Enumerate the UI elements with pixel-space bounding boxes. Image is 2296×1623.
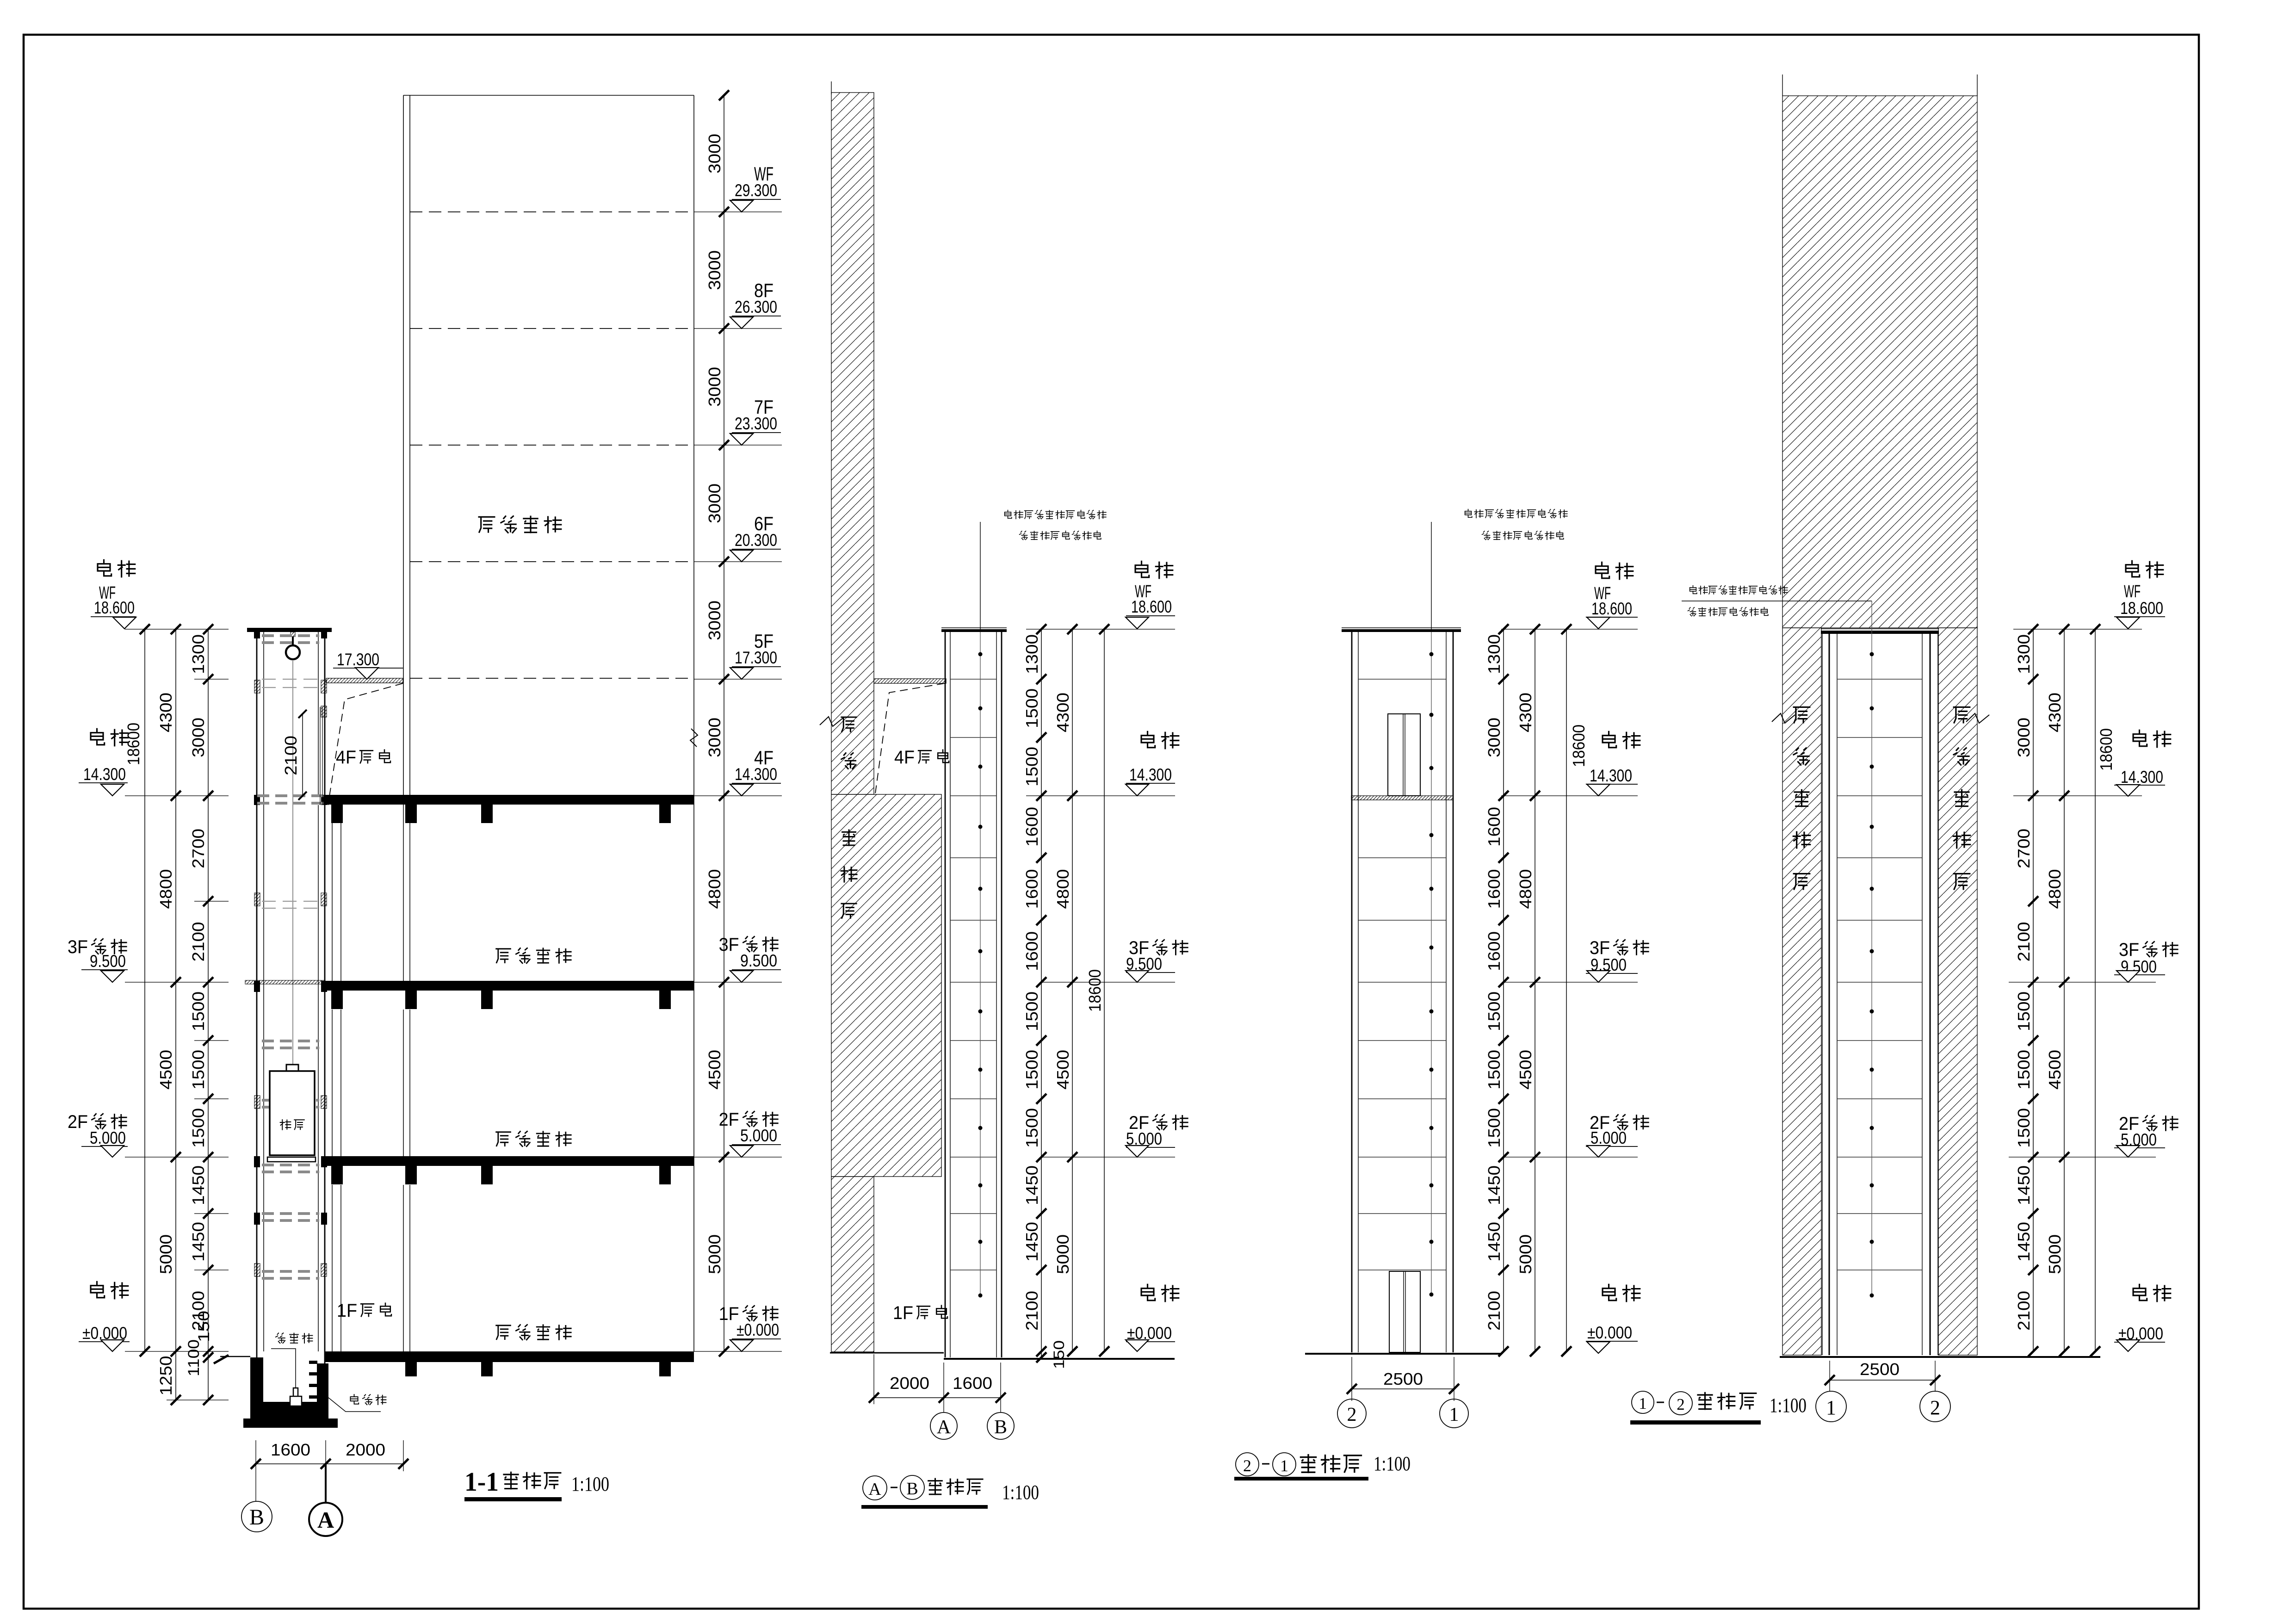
svg-text:3000: 3000 [705,134,724,173]
svg-text:18.600: 18.600 [1131,597,1172,616]
svg-text:1-1: 1-1 [464,1467,499,1497]
svg-text:2100: 2100 [2014,1291,2033,1331]
svg-text:1450: 1450 [1485,1222,1504,1262]
svg-text:4500: 4500 [705,1050,724,1090]
svg-text:4300: 4300 [1053,693,1072,732]
svg-text:2: 2 [1243,1456,1251,1475]
svg-text:3000: 3000 [2014,718,2033,757]
svg-text:2000: 2000 [890,1374,929,1393]
svg-text:2500: 2500 [1860,1360,1900,1379]
svg-text:5000: 5000 [1516,1234,1535,1274]
svg-text:5000: 5000 [705,1234,724,1274]
svg-text:1500: 1500 [1022,747,1041,787]
svg-text:1500: 1500 [1022,688,1041,728]
svg-text:1: 1 [1639,1394,1647,1412]
svg-text:4500: 4500 [1516,1050,1535,1090]
svg-text:1600: 1600 [1022,807,1041,847]
svg-text:20.300: 20.300 [735,531,777,550]
svg-text:1500: 1500 [189,991,208,1031]
svg-text:4800: 4800 [1516,869,1535,909]
svg-text:4300: 4300 [1516,693,1535,732]
svg-text:2: 2 [1347,1404,1357,1425]
svg-text:A: A [937,1417,951,1438]
svg-text:1250: 1250 [156,1356,175,1396]
svg-text:14.300: 14.300 [83,765,126,784]
svg-text:2: 2 [1677,1395,1685,1413]
svg-text:4800: 4800 [2045,869,2064,909]
svg-text:1600: 1600 [953,1374,992,1393]
svg-text:4F: 4F [894,747,915,768]
svg-text:18600: 18600 [2097,728,2116,771]
svg-text:1:100: 1:100 [1770,1394,1807,1417]
svg-text:B: B [906,1479,918,1499]
svg-text:1300: 1300 [1485,634,1504,674]
svg-text:5000: 5000 [2045,1234,2064,1274]
svg-text:1600: 1600 [1485,869,1504,909]
svg-text:1500: 1500 [2014,1108,2033,1148]
svg-text:2: 2 [1930,1396,1940,1419]
svg-text:1600: 1600 [271,1440,310,1459]
svg-text:5.000: 5.000 [740,1126,777,1145]
svg-text:5000: 5000 [1053,1234,1072,1274]
svg-text:3000: 3000 [705,718,724,757]
svg-text:1500: 1500 [189,1108,208,1148]
svg-text:1:100: 1:100 [571,1473,609,1495]
svg-text:2100: 2100 [281,736,300,775]
svg-text:1600: 1600 [1022,869,1041,909]
svg-text:1450: 1450 [1022,1222,1041,1262]
svg-text:3000: 3000 [705,367,724,407]
svg-text:B: B [249,1505,264,1530]
svg-text:3000: 3000 [1485,718,1504,757]
svg-text:1: 1 [1280,1456,1288,1475]
svg-text:3000: 3000 [189,718,208,757]
svg-text:1450: 1450 [189,1165,208,1205]
svg-text:3000: 3000 [705,601,724,640]
svg-text:2100: 2100 [1485,1291,1504,1331]
svg-text:17.300: 17.300 [337,650,379,669]
svg-text:1450: 1450 [1485,1165,1504,1205]
svg-text:5.000: 5.000 [90,1128,126,1147]
svg-text:29.300: 29.300 [735,181,777,200]
svg-text:5.000: 5.000 [1590,1128,1627,1147]
svg-text:2500: 2500 [1383,1369,1423,1388]
svg-text:4300: 4300 [2045,693,2064,732]
svg-text:1300: 1300 [189,634,208,674]
svg-text:±0.000: ±0.000 [1587,1323,1632,1342]
svg-text:4500: 4500 [156,1050,175,1090]
svg-text:150: 150 [1051,1340,1067,1369]
svg-text:9.500: 9.500 [740,951,777,970]
svg-text:4500: 4500 [1053,1050,1072,1090]
svg-text:1:100: 1:100 [1374,1452,1411,1475]
svg-text:2F: 2F [68,1112,88,1132]
svg-text:1450: 1450 [1022,1165,1041,1205]
svg-text:4F: 4F [336,747,356,768]
svg-text:4800: 4800 [156,869,175,909]
svg-text:18.600: 18.600 [2120,599,2163,618]
svg-text:1500: 1500 [1485,1050,1504,1090]
svg-text:1F: 1F [337,1301,357,1321]
svg-text:1500: 1500 [189,1050,208,1090]
svg-text:3000: 3000 [705,250,724,290]
svg-text:5000: 5000 [156,1234,175,1274]
svg-text:18600: 18600 [1085,969,1104,1012]
svg-text:18.600: 18.600 [94,598,135,617]
svg-text:1F: 1F [893,1303,913,1323]
svg-text:14.300: 14.300 [735,765,777,784]
svg-text:2100: 2100 [189,922,208,962]
svg-text:4800: 4800 [705,869,724,909]
svg-text:1500: 1500 [1022,1050,1041,1090]
svg-text:1450: 1450 [189,1222,208,1262]
svg-text:1300: 1300 [1022,634,1041,674]
svg-text:±0.000: ±0.000 [736,1320,779,1339]
svg-text:4300: 4300 [156,693,175,732]
svg-text:3000: 3000 [705,483,724,523]
svg-text:14.300: 14.300 [1590,766,1632,785]
svg-text:18.600: 18.600 [1591,599,1632,618]
svg-text:3F: 3F [68,937,88,957]
svg-text:1500: 1500 [1022,1108,1041,1148]
svg-text:1F: 1F [719,1304,739,1324]
svg-text:1: 1 [1449,1404,1459,1425]
svg-text:26.300: 26.300 [735,297,777,316]
svg-text:1500: 1500 [2014,1050,2033,1090]
svg-text:150: 150 [195,1311,213,1342]
svg-text:2100: 2100 [2014,922,2033,962]
svg-text:2700: 2700 [189,829,208,868]
svg-text:1600: 1600 [1022,931,1041,971]
svg-text:A: A [868,1480,881,1499]
svg-text:18600: 18600 [1569,725,1588,767]
svg-text:2000: 2000 [346,1440,385,1459]
svg-text:4800: 4800 [1053,869,1072,909]
svg-text:B: B [994,1417,1007,1438]
svg-text:3F: 3F [719,935,739,955]
svg-text:1500: 1500 [1485,1108,1504,1148]
svg-text:1450: 1450 [2014,1165,2033,1205]
svg-text:1: 1 [1826,1396,1836,1419]
svg-text:17.300: 17.300 [735,648,777,667]
svg-text:2F: 2F [719,1109,739,1130]
svg-text:1500: 1500 [1022,991,1041,1031]
svg-text:4500: 4500 [2045,1050,2064,1090]
svg-text:14.300: 14.300 [1129,765,1172,784]
svg-text:1600: 1600 [1485,807,1504,847]
svg-text:1600: 1600 [1485,931,1504,971]
svg-text:1100: 1100 [185,1339,203,1376]
svg-text:2700: 2700 [2014,829,2033,868]
svg-text:14.300: 14.300 [2121,768,2163,787]
svg-text:1:100: 1:100 [1002,1481,1039,1504]
svg-text:9.500: 9.500 [90,952,126,971]
svg-text:2100: 2100 [1022,1291,1041,1331]
svg-text:A: A [317,1507,334,1533]
svg-text:1500: 1500 [1485,991,1504,1031]
svg-text:1300: 1300 [2014,634,2033,674]
svg-text:23.300: 23.300 [735,414,777,433]
svg-text:1450: 1450 [2014,1222,2033,1262]
svg-text:1500: 1500 [2014,991,2033,1031]
svg-text:18600: 18600 [124,723,143,765]
